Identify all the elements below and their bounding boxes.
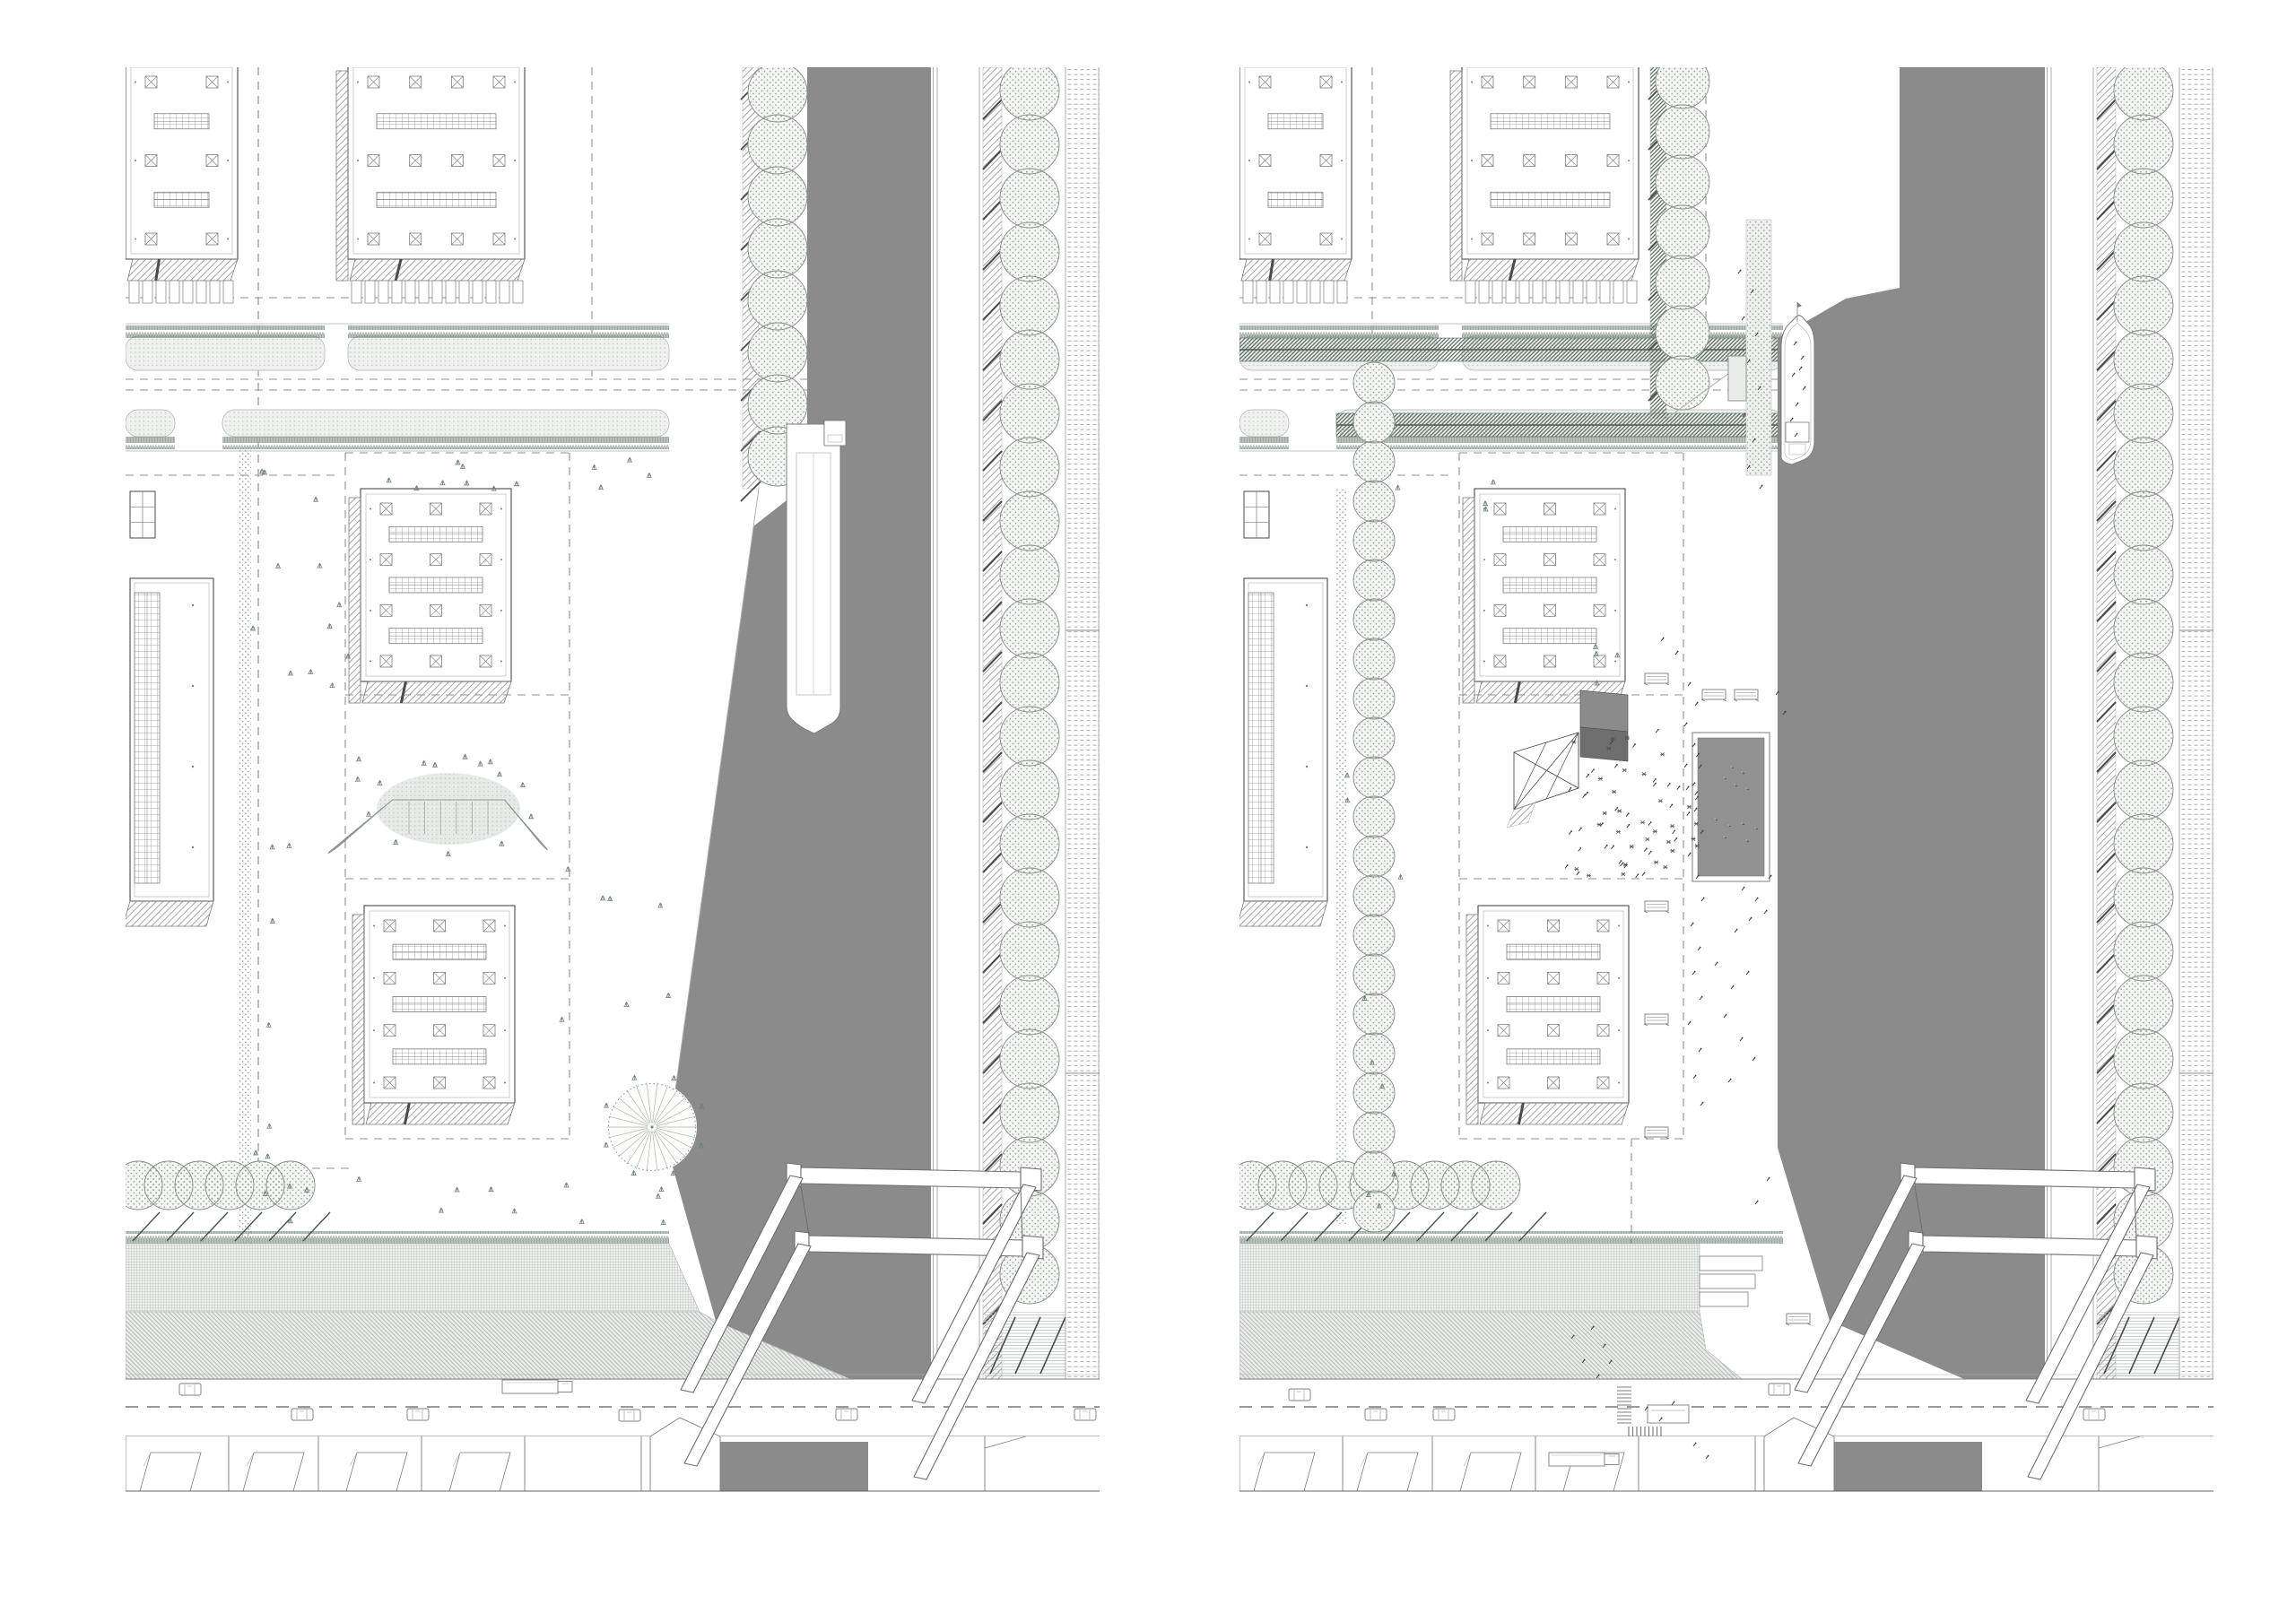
buildings bbox=[126, 67, 525, 1124]
buildings bbox=[1239, 67, 1639, 1124]
drawing-sheet bbox=[0, 0, 2296, 1605]
quay-hedge-row bbox=[126, 1161, 330, 1241]
moored-ship bbox=[1781, 302, 1814, 464]
canal-barge bbox=[787, 421, 846, 733]
site-plan-after-drawing bbox=[1239, 67, 2213, 1502]
tree-row-column bbox=[1353, 362, 1395, 1232]
pontoon-dock bbox=[1728, 356, 1746, 401]
site-plan-before-drawing bbox=[126, 67, 1100, 1502]
site-plan-before-panel bbox=[126, 67, 1100, 1502]
tree-canopy-grove bbox=[328, 760, 548, 856]
trellis-canopy bbox=[1507, 733, 1578, 828]
green-path-strip bbox=[1336, 489, 1347, 1224]
quay-paving-strip bbox=[1746, 220, 1771, 475]
quay-platform bbox=[1239, 1244, 1762, 1379]
floating-pool bbox=[1692, 733, 1770, 881]
pavilion-cube bbox=[1580, 690, 1628, 761]
site-plan-after-panel bbox=[1239, 67, 2213, 1502]
